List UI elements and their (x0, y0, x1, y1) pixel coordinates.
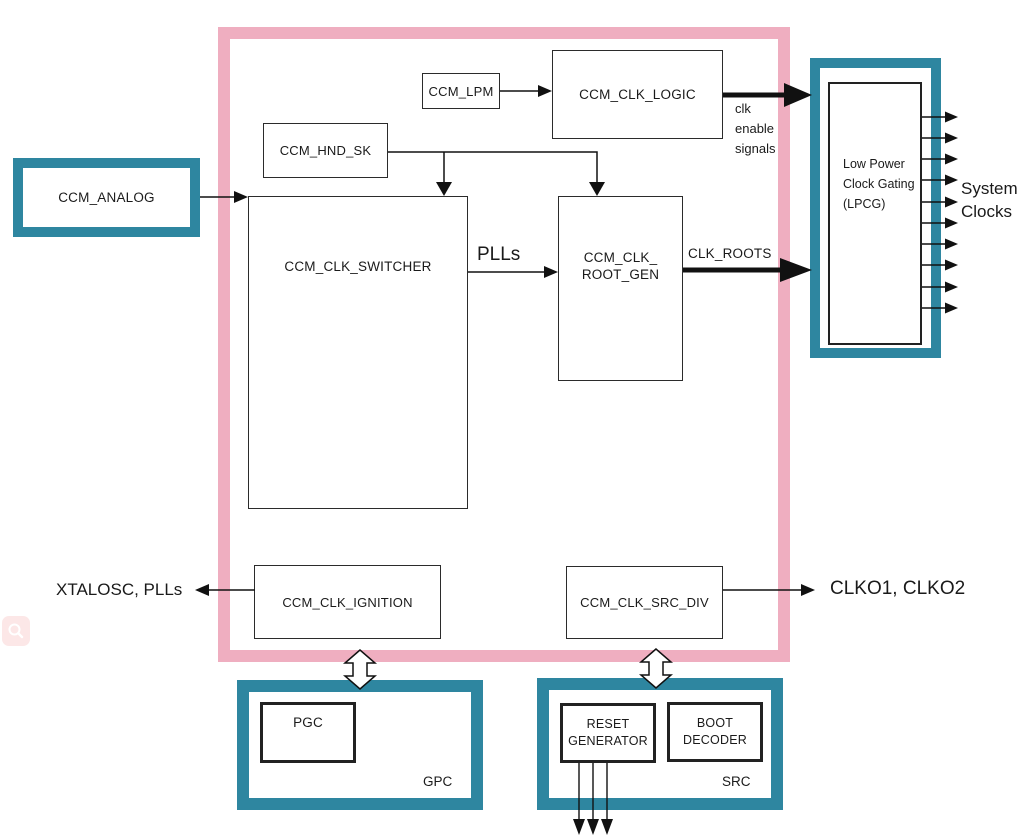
clk-enable-signals-label: clk enable signals (735, 99, 775, 159)
block-label: CCM_HND_SK (280, 143, 372, 158)
block-label: CCM_LPM (429, 84, 494, 99)
plls-label: PLLs (477, 244, 520, 266)
system-clocks-label: System Clocks (961, 177, 1018, 223)
xtalosc-plls-label: XTALOSC, PLLs (56, 580, 182, 600)
gpc-label: GPC (423, 774, 452, 789)
block-reset-generator: RESET GENERATOR (560, 703, 656, 763)
magnifier-icon (6, 621, 26, 641)
system-clock-arrowheads (945, 112, 958, 314)
block-label: PGC (293, 705, 323, 730)
block-label: CCM_ANALOG (58, 190, 155, 205)
block-ccm-lpm: CCM_LPM (422, 73, 500, 109)
block-label: BOOT DECODER (683, 715, 747, 749)
block-label: CCM_CLK_LOGIC (579, 87, 696, 102)
block-boot-decoder: BOOT DECODER (667, 702, 763, 762)
block-label: CCM_CLK_SWITCHER (284, 197, 431, 274)
block-label: CCM_CLK_SRC_DIV (580, 595, 709, 610)
clko-label: CLKO1, CLKO2 (830, 578, 965, 600)
src-label: SRC (722, 774, 751, 789)
block-ccm-clk-src-div: CCM_CLK_SRC_DIV (566, 566, 723, 639)
block-label: CCM_CLK_IGNITION (282, 595, 412, 610)
block-ccm-hnd-sk: CCM_HND_SK (263, 123, 388, 178)
block-ccm-clk-root-gen: CCM_CLK_ ROOT_GEN (558, 196, 683, 381)
clk-roots-label: CLK_ROOTS (688, 246, 772, 261)
zoom-button[interactable] (2, 616, 30, 646)
block-ccm-analog: CCM_ANALOG (13, 158, 200, 237)
block-label: RESET GENERATOR (568, 716, 648, 750)
block-label: CCM_CLK_ ROOT_GEN (582, 197, 659, 283)
block-ccm-clk-logic: CCM_CLK_LOGIC (552, 50, 723, 139)
block-pgc: PGC (260, 702, 356, 763)
block-label: Low Power Clock Gating (LPCG) (843, 154, 915, 214)
block-ccm-clk-switcher: CCM_CLK_SWITCHER (248, 196, 468, 509)
block-lpcg: Low Power Clock Gating (LPCG) (828, 82, 922, 345)
ccm-block-diagram: CCM_ANALOG CCM_LPM CCM_CLK_LOGIC CCM_HND… (0, 0, 1028, 836)
block-ccm-clk-ignition: CCM_CLK_IGNITION (254, 565, 441, 639)
